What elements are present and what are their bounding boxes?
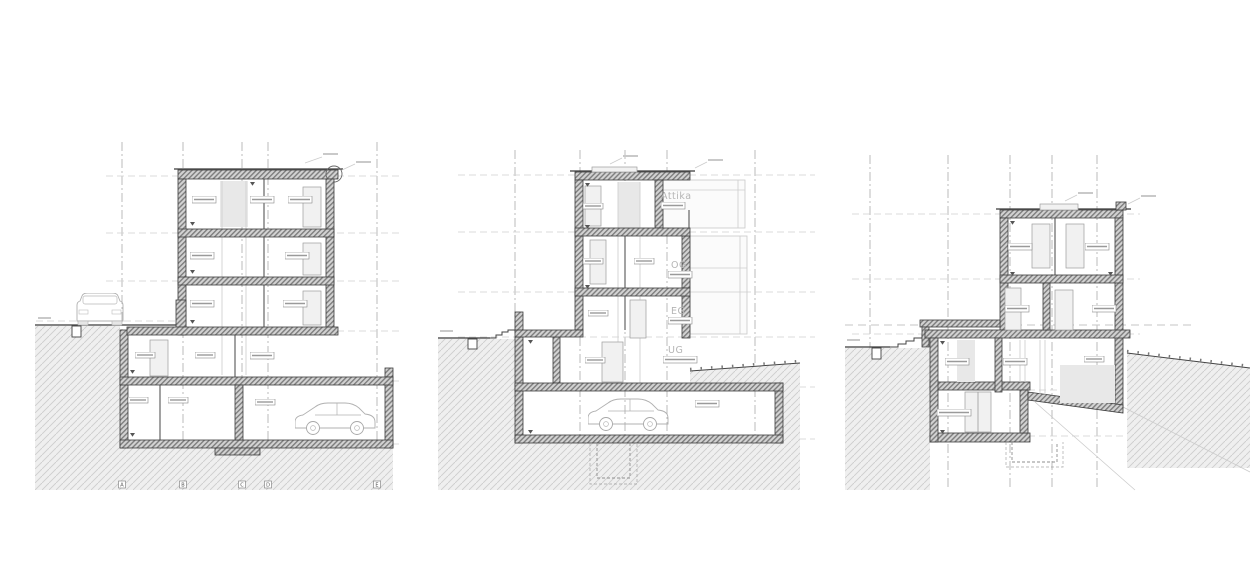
- car-side-icon: [588, 399, 668, 431]
- floor-label-og: OG: [671, 260, 687, 271]
- street-gully-icon: [72, 326, 81, 337]
- foundation-pit-outline: [1006, 442, 1063, 467]
- drawing-sheet: A B C D E: [0, 0, 1250, 577]
- floor-label-ug: UG: [668, 345, 683, 356]
- floor-label-attika: Attika: [661, 191, 692, 202]
- section-left-ground: [35, 317, 393, 490]
- section-middle: Attika OG EG UG: [438, 150, 815, 490]
- floor-label-eg: EG: [671, 306, 685, 317]
- section-right-building: [920, 192, 1156, 467]
- car-side-icon: [295, 403, 375, 435]
- grid-marker-a: A: [119, 481, 126, 489]
- grid-letter: D: [266, 483, 270, 489]
- street-annotation-text: [38, 317, 51, 319]
- grid-marker-e: E: [374, 481, 381, 489]
- grid-letter: E: [375, 483, 378, 489]
- street-gully-icon: [468, 339, 477, 349]
- grid-marker-c: C: [239, 481, 246, 489]
- grid-letter: B: [181, 483, 185, 489]
- section-right: [845, 155, 1250, 490]
- section-left: A B C D E: [35, 142, 400, 490]
- architectural-sections-drawing: A B C D E: [0, 0, 1250, 577]
- car-front-icon: [77, 293, 123, 325]
- grid-marker-d: D: [265, 481, 272, 489]
- grid-marker-b: B: [180, 481, 187, 489]
- grid-letter: A: [120, 483, 124, 489]
- street-annotation-text: [847, 339, 860, 341]
- grid-letter: C: [240, 483, 244, 489]
- street-gully-icon: [872, 348, 881, 359]
- street-annotation-text: [440, 330, 453, 332]
